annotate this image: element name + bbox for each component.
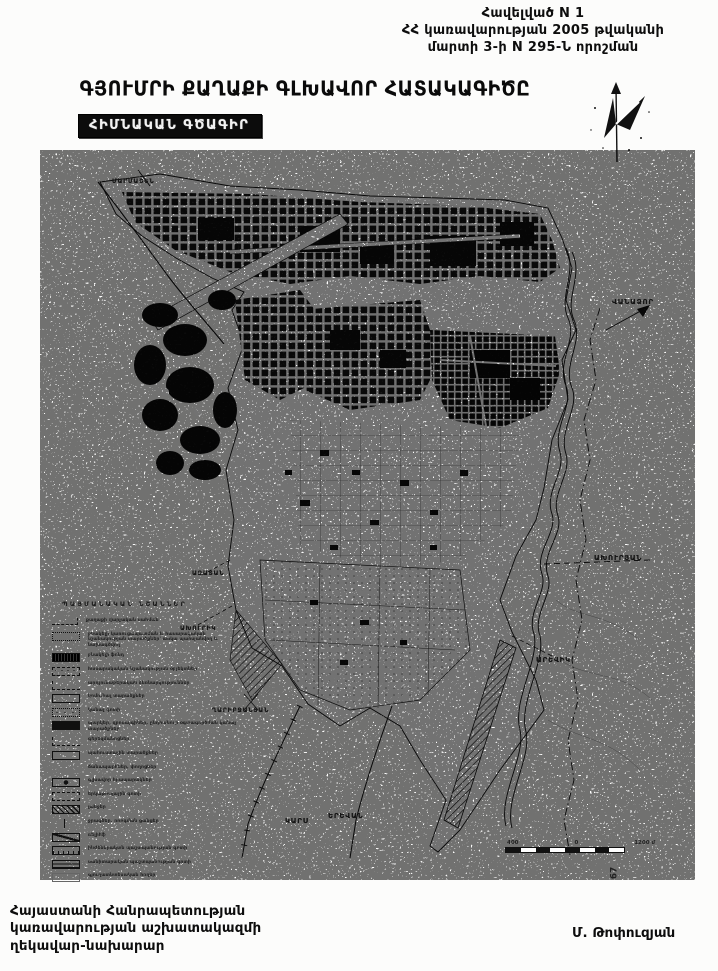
map-place-label: ԱՐԵՎԻԿ — [536, 656, 571, 664]
park-blobs — [134, 290, 237, 480]
legend-symbol-cornerdash — [52, 681, 80, 690]
legend-symbol-solid — [52, 653, 80, 662]
scale-segment — [580, 848, 595, 852]
legend-item-label: գլխավոր հրապարակներ — [88, 778, 152, 784]
scale-mid-label: 0 — [574, 840, 578, 846]
subtitle-box: ՀԻՄՆԱԿԱՆ ԳԾԱԳԻՐ — [78, 114, 262, 138]
legend-item: սանիտարական պաշտպանության գոտի — [52, 860, 248, 869]
appendix-header: Հավելված N 1 ՀՀ կառավարության 2005 թվակա… — [368, 6, 698, 57]
legend-rows: քաղաքի վարչական սահմանբնակելի կառուցապատ… — [52, 618, 248, 882]
legend-item-label: պահուստային տարածքներ — [88, 751, 158, 757]
footer-line-1: Հայաստանի Հանրապետության — [10, 903, 261, 920]
legend-item: բնակելի ֆոնդ — [52, 653, 248, 662]
footer-line-3: ղեկավար-նախարար — [10, 938, 261, 955]
scale-segment — [565, 848, 580, 852]
legend-item-label: ռելիեֆ — [88, 833, 106, 839]
scale-segment — [536, 848, 551, 852]
appendix-line-2: ՀՀ կառավարության 2005 թվականի — [368, 23, 698, 40]
page-title: ԳՅՈՒՄՐԻ ՔԱՂԱՔԻ ԳԼԽԱՎՈՐ ՀԱՏԱԿԱԳԻԾԸ — [70, 77, 540, 100]
legend-symbol-circle — [52, 778, 80, 787]
map-place-label: ԿԱՐՍ — [285, 817, 309, 825]
scale-segment — [550, 848, 565, 852]
signatory-title-block: Հայաստանի Հանրապետության կառավարության ա… — [10, 903, 261, 955]
footer-line-2: կառավարության աշխատակազմի — [10, 920, 261, 937]
legend-item-label: կանաչ գոտի — [88, 708, 120, 714]
legend-item: գերեզմանոցներ — [52, 737, 248, 746]
scale-segment — [595, 848, 610, 852]
legend-item-label: սանիտարական պաշտպանության գոտի — [88, 860, 191, 866]
legend-item: կոմունալ տարածքներ — [52, 694, 248, 703]
legend-item: ջրագծեր, ոռոգման ցանցեր — [52, 819, 248, 828]
legend-symbol-hatch — [52, 805, 80, 814]
scale-bar: 400 0 1200 մ — [505, 840, 655, 853]
legend-item: գյուղատնտեսական հողեր — [52, 873, 248, 882]
legend-symbol-empty — [52, 694, 80, 703]
signature-name: Մ. Թոփուզյան — [572, 925, 675, 941]
scale-segment — [506, 848, 521, 852]
legend-item-label: ճանապարհներ, փողոցներ — [88, 765, 156, 771]
legend-item: բնակելի կառուցապատման և հասարակական նշան… — [52, 632, 248, 649]
scale-bar-segments — [505, 847, 625, 853]
legend-item-label: լանջեր — [88, 805, 106, 811]
legend-item-label: ջրագծեր, ոռոգման ցանցեր — [88, 819, 159, 825]
map-place-label: ԱԶԱՏԱՆ — [192, 570, 224, 577]
legend-item: ինժեներական պաշտպանության գոտի — [52, 846, 248, 855]
legend-symbol-dashed — [52, 792, 80, 801]
district-boundary — [564, 308, 600, 855]
legend-item: պահուստային տարածքներ — [52, 751, 248, 760]
river — [505, 248, 577, 828]
legend-item-label: գյուղատնտեսական հողեր — [88, 873, 155, 879]
scale-segment — [609, 848, 624, 852]
legend-symbol-thinline — [64, 819, 74, 828]
legend-symbol-hlines — [52, 860, 80, 869]
map-place-label: ԵՐԵՎԱՆ — [328, 812, 363, 820]
legend-symbol-empty — [52, 751, 80, 760]
gorge-strip — [444, 640, 516, 828]
legend-item-label: պարկեր, զբոսայգիներ, ընդհանուր օգտագործմ… — [88, 721, 244, 732]
map-place-label: ՎԱՆԱՁՈՐ — [612, 298, 654, 306]
appendix-line-1: Հավելված N 1 — [368, 6, 698, 23]
map-place-label: ՄԱՐՄԱՇԵՆ — [112, 178, 154, 185]
legend-item-label: կոմունալ տարածքներ — [88, 694, 145, 700]
legend-item-label: գերեզմանոցներ — [88, 737, 129, 743]
legend-item: կանաչ գոտի — [52, 708, 248, 717]
appendix-line-3: մարտի 3-ի N 295-Ն որոշման — [368, 40, 698, 57]
legend-item-label: հասարակական նշանակության օբյեկտներ — [88, 667, 197, 673]
legend-symbol-mixdots — [52, 667, 80, 676]
legend-item-label: բնակելի կառուցապատման և հասարակական նշան… — [88, 632, 244, 649]
legend-symbol-dotted2 — [52, 708, 80, 717]
legend-item: ռելիեֆ — [52, 833, 248, 842]
legend-item: պարկեր, զբոսայգիներ, ընդհանուր օգտագործմ… — [52, 721, 248, 732]
map-place-label: ԱԽՈՒՐՅԱՆ — [594, 554, 642, 562]
railway-line — [242, 706, 300, 858]
scale-right-label: 1200 մ — [634, 840, 655, 846]
legend-item: հասարակական նշանակության օբյեկտներ — [52, 667, 248, 676]
legend-symbol-curve — [52, 833, 80, 842]
legend-item-label: ինժեներական պաշտպանության գոտի — [88, 846, 187, 852]
legend-item-label: քաղաքի վարչական սահման — [86, 618, 159, 624]
legend-symbol-solidglyph — [52, 721, 80, 730]
legend-item: ճանապարհներ, փողոցներ — [52, 765, 248, 774]
legend-symbol-ticks — [52, 846, 80, 855]
page-number: 67 — [609, 867, 619, 880]
legend-symbol-dotted — [52, 632, 80, 641]
legend-item-label: երկաթուղային գոտի — [88, 792, 141, 798]
legend-item-label: բնակելի ֆոնդ — [88, 653, 124, 659]
legend-symbol-light — [52, 873, 80, 882]
scale-left-label: 400 — [507, 840, 518, 846]
legend-item: երկաթուղային գոտի — [52, 792, 248, 801]
legend-symbol-cornerdash — [52, 737, 80, 746]
map-legend: ՊԱՅՄԱՆԱԿԱՆ ՆՇԱՆՆԵՐ քաղաքի վարչական սահմա… — [52, 600, 248, 887]
north-arrow-icon — [583, 78, 659, 166]
legend-item: գլխավոր հրապարակներ — [52, 778, 248, 787]
legend-item-label: արդյունաբերական ձեռնարկություններ — [88, 681, 190, 687]
scale-segment — [521, 848, 536, 852]
legend-symbol-dashline — [52, 618, 78, 625]
legend-item: արդյունաբերական ձեռնարկություններ — [52, 681, 248, 690]
legend-item: քաղաքի վարչական սահման — [52, 618, 248, 627]
legend-title: ՊԱՅՄԱՆԱԿԱՆ ՆՇԱՆՆԵՐ — [62, 600, 248, 608]
legend-item: լանջեր — [52, 805, 248, 814]
